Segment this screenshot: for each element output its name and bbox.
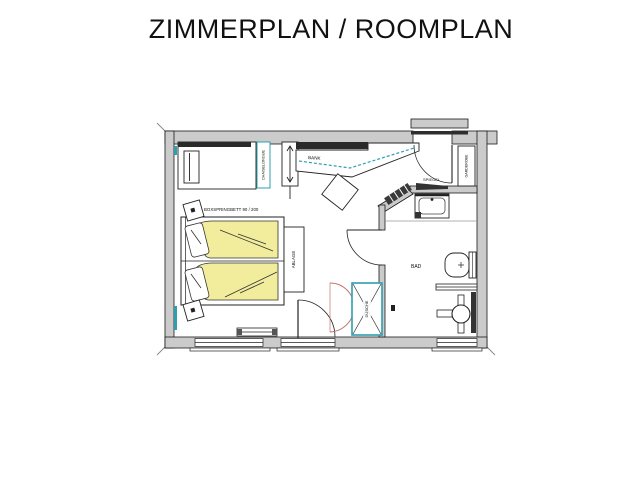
bathroom-label: BAD [411,264,422,270]
window-sill [277,348,339,351]
washbasin [415,194,449,218]
wall-left [165,131,174,348]
entry-lintel [411,131,468,135]
bath-shelf [436,284,477,290]
curtain-mark [174,146,177,155]
pillow [184,151,199,183]
wardrobe: GARDEROBE [458,146,475,186]
wall-partition-upper [379,205,385,230]
double-bed [181,217,284,305]
mirror-bar [416,183,448,190]
faucet [431,198,434,201]
bench-label: BANK [308,155,322,161]
floor-plan: CHAISELONGUE BANK BOXSPRINGBETT 90 / 200 [0,0,640,477]
wardrobe-label: GARDEROBE [464,154,468,178]
bench: BANK [296,142,419,177]
door-handle [391,305,395,311]
corner-shower-fixture [437,292,476,333]
chaise-longue-text: CHAISELONGUE [262,149,266,180]
shower-drain [452,305,470,323]
radiator [237,328,277,336]
chaise-longue [178,142,256,189]
chaise-longue-label: CHAISELONGUE [257,142,270,188]
mirror-label: SPIEGEL [423,177,441,182]
headboard [178,142,251,147]
shelf-label: ABLAGE [291,251,296,269]
shower-label: DUSCHE [364,300,369,317]
bench-backrest [296,142,368,149]
wall-right [477,131,487,348]
toilet [445,252,476,278]
window-sill [432,348,482,351]
glass-panel [471,292,476,333]
window-sill [190,348,270,351]
curtain-mark [174,306,177,330]
roomplan-page: ZIMMERPLAN / ROOMPLAN [0,0,640,477]
shelf-unit: ABLAGE [284,227,304,292]
wall-corridor [411,119,468,128]
shower: DUSCHE [352,283,382,335]
table [322,174,358,210]
bed-label: BOXSPRINGBETT 90 / 200 [204,207,259,212]
balcony-door [298,300,335,338]
interior-door [347,230,382,265]
bathroom-folding-door [330,283,354,332]
